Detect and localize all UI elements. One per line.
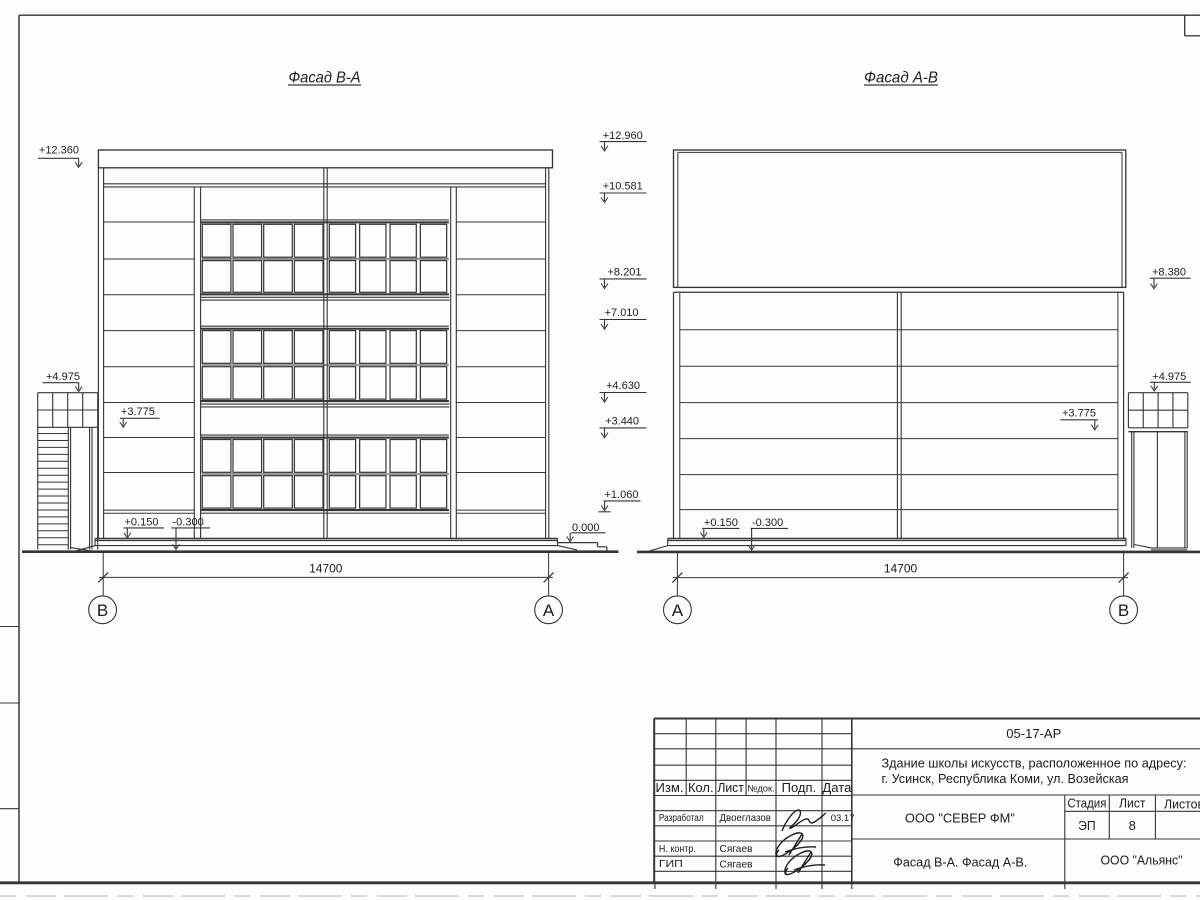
svg-text:ЭП: ЭП xyxy=(1078,818,1096,833)
svg-text:Здание школы искусств, располо: Здание школы искусств, расположенное по … xyxy=(882,756,1187,771)
svg-text:+10.581: +10.581 xyxy=(603,181,643,193)
svg-text:+8.380: +8.380 xyxy=(1152,267,1186,279)
svg-text:ООО "СЕВЕР ФМ": ООО "СЕВЕР ФМ" xyxy=(905,810,1015,825)
svg-text:8: 8 xyxy=(1129,818,1136,833)
svg-text:№док.: №док. xyxy=(747,783,775,794)
svg-text:В: В xyxy=(1118,601,1129,620)
svg-text:-0.300: -0.300 xyxy=(173,516,204,528)
svg-text:+4.975: +4.975 xyxy=(46,371,80,383)
svg-text:Фасад В-А: Фасад В-А xyxy=(289,70,361,87)
svg-text:А: А xyxy=(543,601,555,620)
svg-text:Н. контр.: Н. контр. xyxy=(659,844,696,855)
svg-text:г. Усинск, Республика Коми, ул: г. Усинск, Республика Коми, ул. Возейска… xyxy=(882,771,1129,786)
svg-text:+12.360: +12.360 xyxy=(39,145,79,157)
svg-text:Двоеглазов: Двоеглазов xyxy=(720,812,772,824)
svg-text:+8.201: +8.201 xyxy=(608,267,642,279)
svg-text:Разработал: Разработал xyxy=(659,812,704,824)
svg-text:Лист: Лист xyxy=(1119,797,1146,811)
svg-text:+0.150: +0.150 xyxy=(704,517,738,529)
svg-text:+12.960: +12.960 xyxy=(603,130,643,142)
svg-text:+3.775: +3.775 xyxy=(121,406,155,418)
svg-text:+3.440: +3.440 xyxy=(605,416,639,428)
svg-text:03.17: 03.17 xyxy=(831,813,855,824)
svg-text:05-17-АР: 05-17-АР xyxy=(1006,726,1061,741)
svg-text:Сягаев: Сягаев xyxy=(720,858,753,870)
svg-text:Дата: Дата xyxy=(822,781,851,795)
svg-text:Подп.: Подп. xyxy=(782,781,817,795)
svg-text:14700: 14700 xyxy=(884,562,918,576)
svg-text:ООО "Альянс": ООО "Альянс" xyxy=(1101,852,1183,867)
svg-text:+0.150: +0.150 xyxy=(125,516,159,528)
svg-text:Изм.: Изм. xyxy=(656,781,684,795)
svg-text:-0.300: -0.300 xyxy=(752,517,783,529)
svg-text:ГИП: ГИП xyxy=(659,858,683,870)
svg-text:Сягаев: Сягаев xyxy=(720,843,753,855)
svg-text:В: В xyxy=(97,601,108,620)
svg-text:+1.060: +1.060 xyxy=(605,489,639,501)
svg-text:+4.975: +4.975 xyxy=(1152,371,1186,383)
svg-text:14700: 14700 xyxy=(309,561,343,575)
svg-text:Кол.: Кол. xyxy=(688,781,714,795)
svg-text:+3.775: +3.775 xyxy=(1062,408,1096,420)
svg-text:0.000: 0.000 xyxy=(572,522,600,534)
svg-text:+7.010: +7.010 xyxy=(605,307,639,319)
svg-text:Фасад А-В: Фасад А-В xyxy=(864,70,938,87)
svg-text:Фасад В-А. Фасад А-В.: Фасад В-А. Фасад А-В. xyxy=(893,854,1027,869)
svg-text:Лист: Лист xyxy=(717,781,744,795)
svg-text:+4.630: +4.630 xyxy=(606,380,640,392)
svg-text:Листов: Листов xyxy=(1164,797,1200,811)
svg-text:Стадия: Стадия xyxy=(1067,797,1106,811)
svg-text:А: А xyxy=(672,601,684,620)
